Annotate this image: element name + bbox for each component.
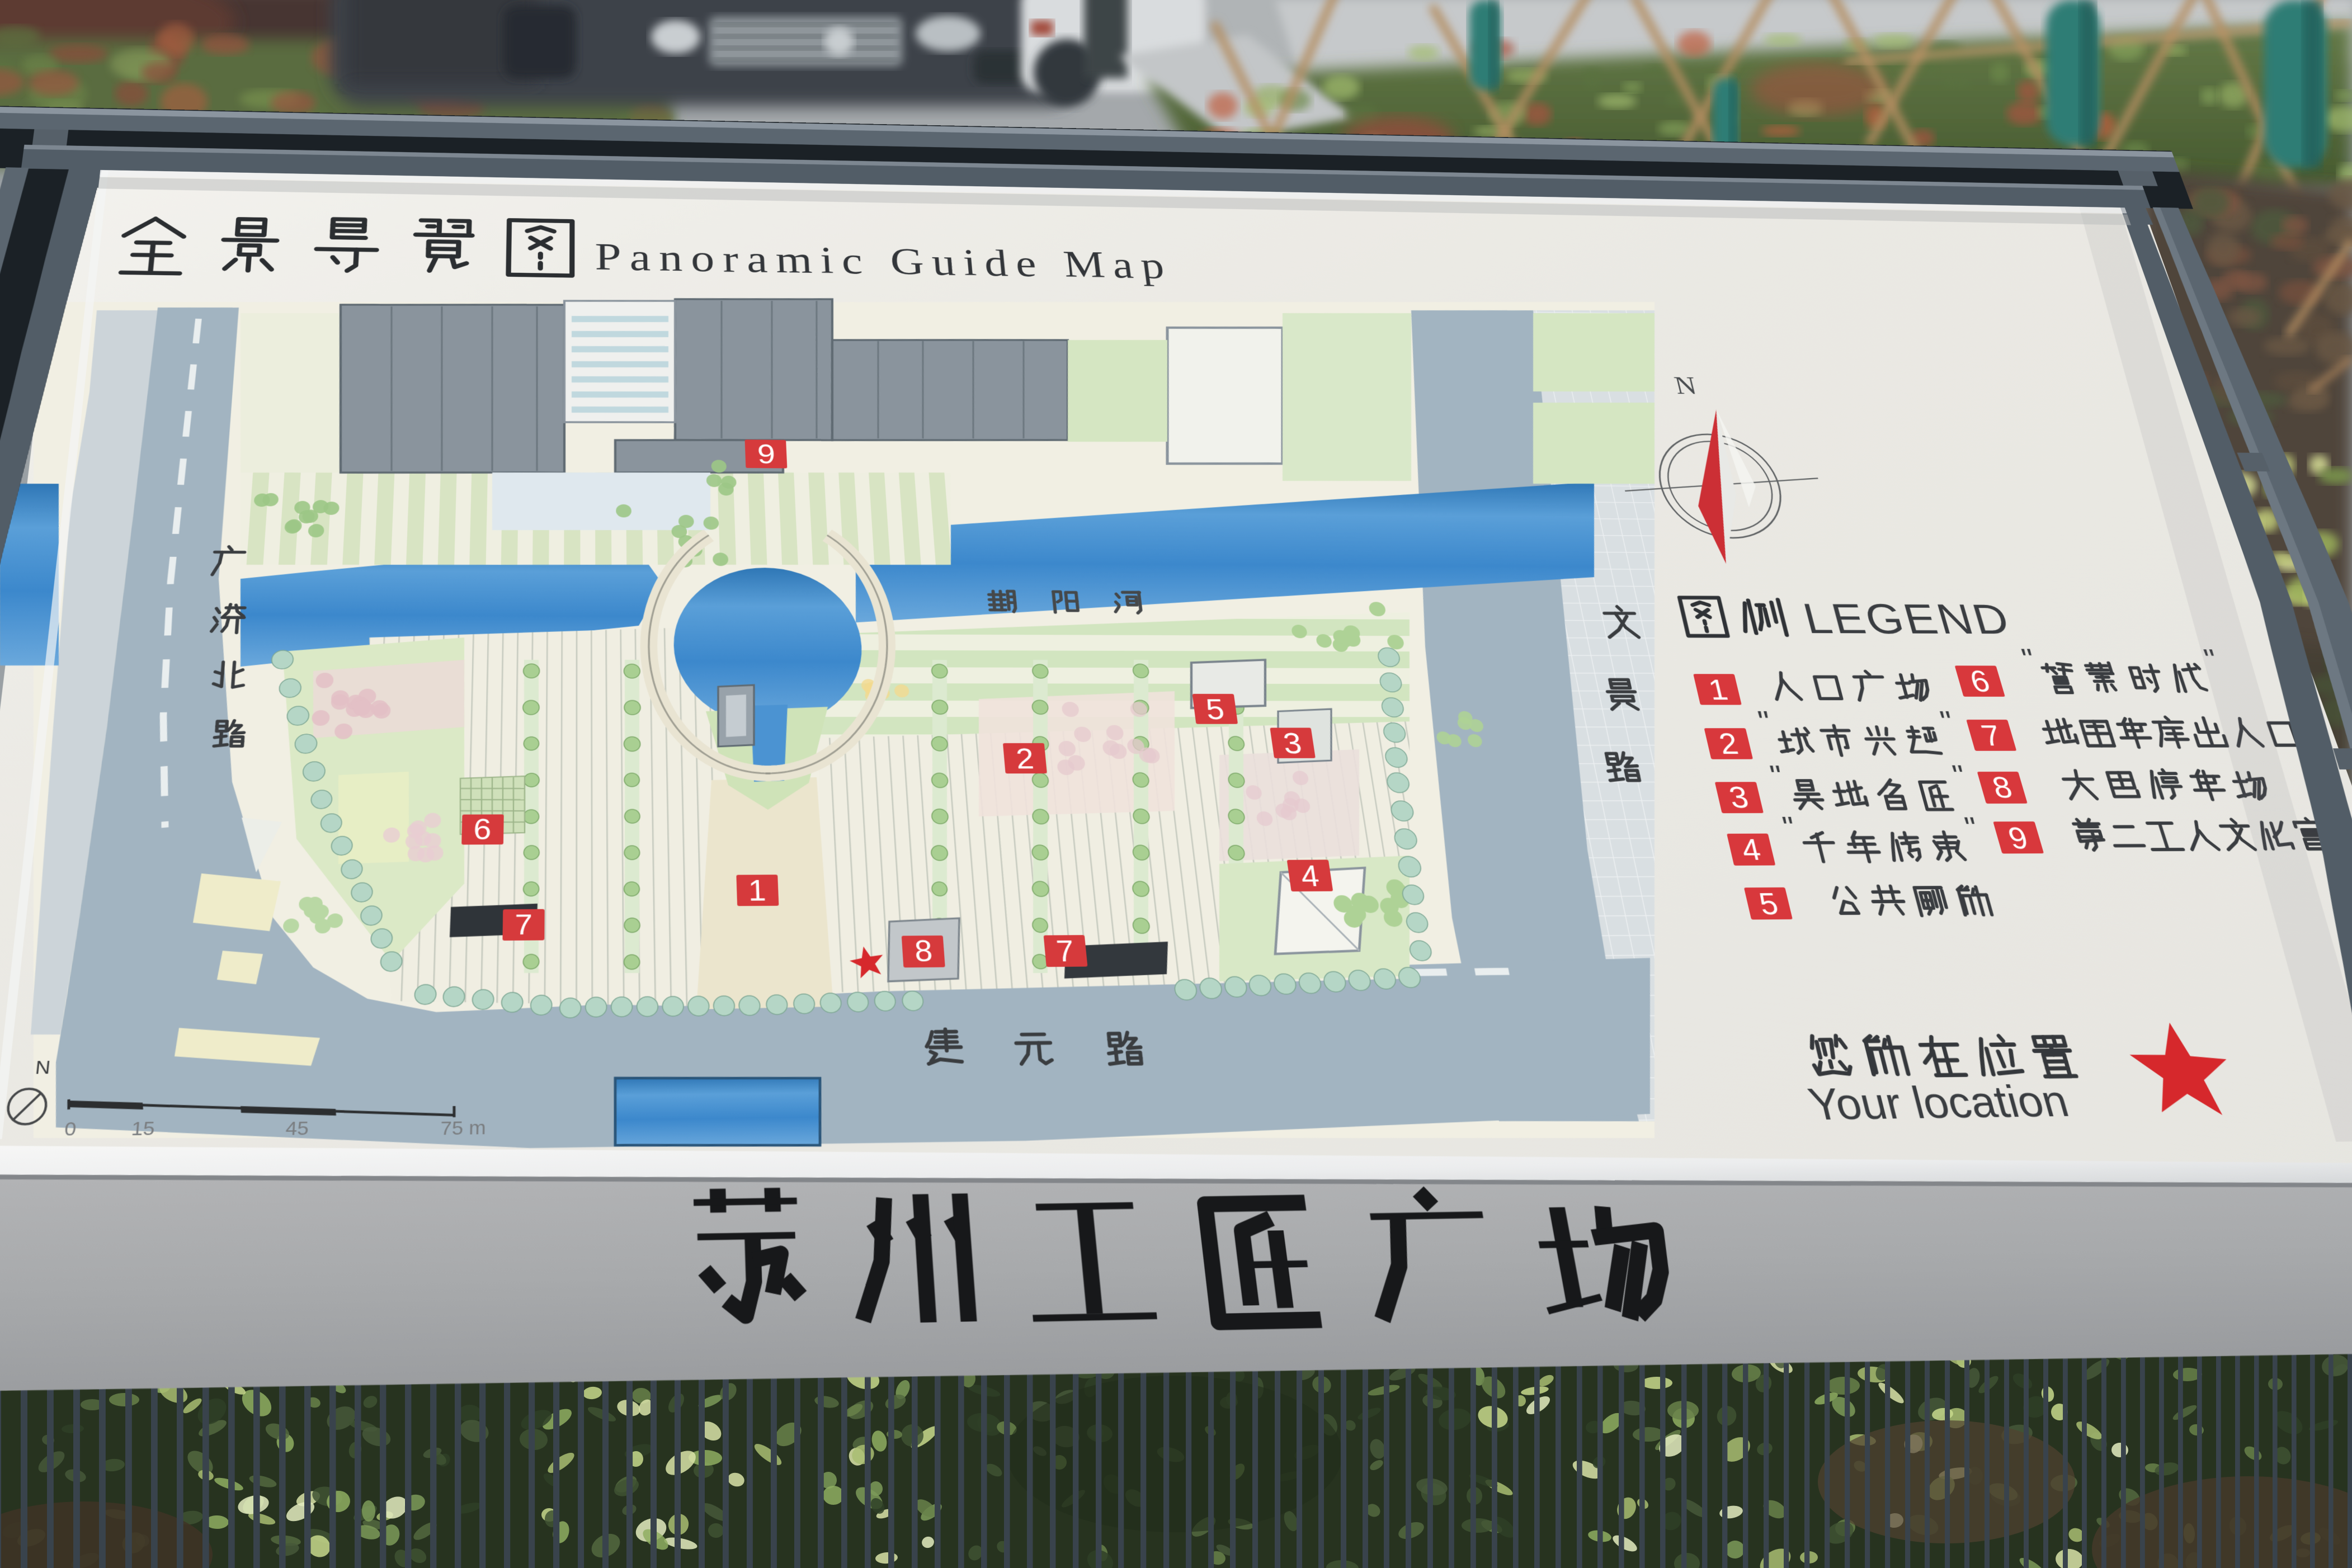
svg-text:9: 9 xyxy=(757,439,776,469)
svg-text:Your location: Your location xyxy=(1804,1076,2074,1130)
svg-text:75 m: 75 m xyxy=(440,1117,486,1139)
svg-text:N: N xyxy=(34,1056,51,1078)
svg-text:0: 0 xyxy=(64,1118,78,1140)
svg-text:LEGEND: LEGEND xyxy=(1798,594,2016,643)
svg-text:8: 8 xyxy=(913,934,934,968)
svg-text:1: 1 xyxy=(748,875,767,908)
svg-text:7: 7 xyxy=(515,908,532,941)
svg-text:7: 7 xyxy=(1055,935,1076,969)
svg-text:2: 2 xyxy=(1015,743,1035,774)
svg-text:45: 45 xyxy=(285,1117,309,1140)
svg-text:15: 15 xyxy=(130,1117,155,1140)
svg-text:6: 6 xyxy=(473,814,492,846)
